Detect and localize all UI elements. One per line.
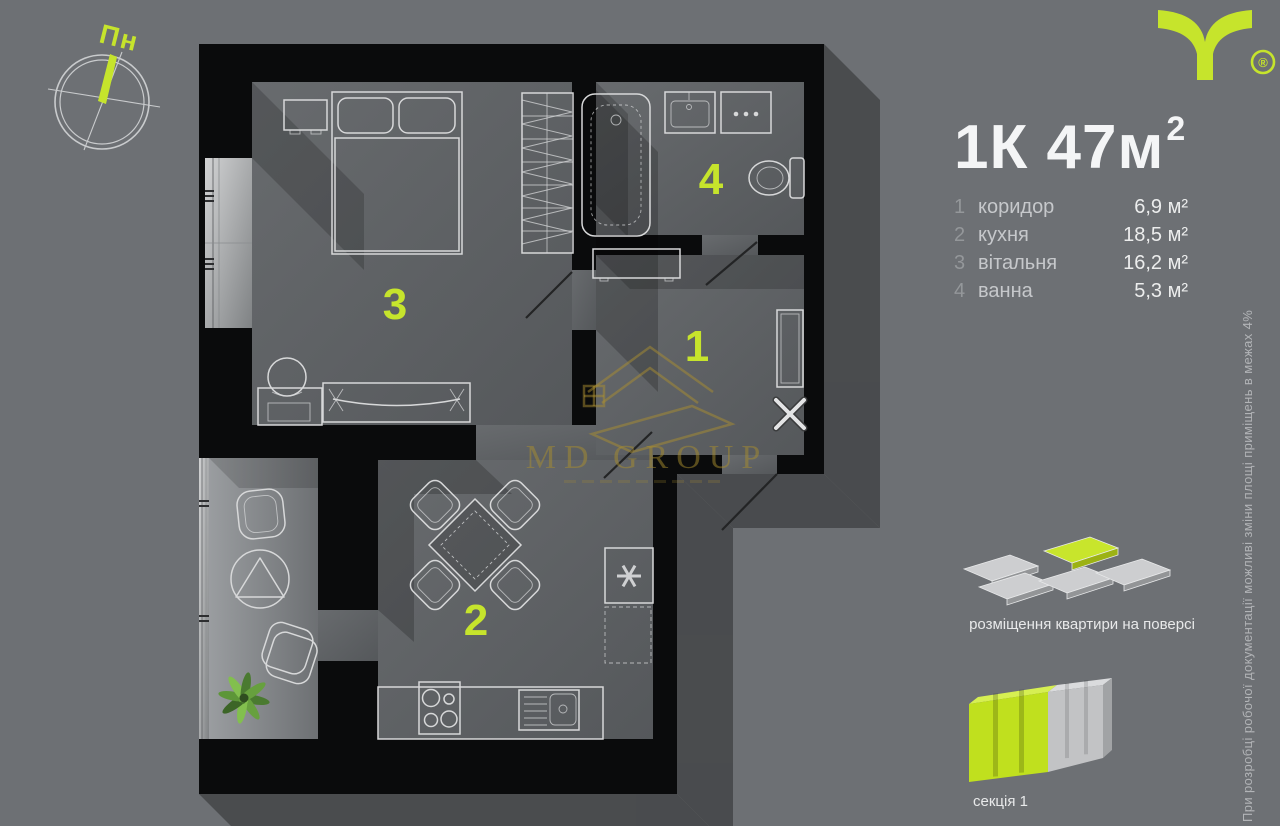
legend-name: кухня	[978, 224, 1123, 247]
rooms-legend: 1коридор6,9 м²2кухня18,5 м²3вітальня16,2…	[954, 196, 1188, 308]
legend-area: 18,5 м²	[1123, 224, 1188, 247]
section-caption: секція 1	[973, 793, 1028, 810]
legend-area: 16,2 м²	[1123, 252, 1188, 275]
floor-position-caption: розміщення квартири на поверсі	[937, 616, 1227, 633]
highlighted-flat-tile	[1044, 537, 1118, 570]
disclaimer-text: При розробці робочої документації можлив…	[1240, 282, 1266, 822]
room-number-corridor: 1	[685, 322, 709, 371]
legend-name: ванна	[978, 280, 1134, 303]
room-number-living-room: 3	[383, 280, 407, 329]
compass: Пн	[36, 2, 176, 164]
legend-row: 4ванна5,3 м²	[954, 280, 1188, 308]
legend-num: 4	[954, 280, 978, 303]
flat-type-area: 1К 47м	[954, 113, 1164, 182]
balcony-passage-floor	[318, 610, 378, 661]
legend-name: вітальня	[978, 252, 1123, 275]
legend-num: 1	[954, 196, 978, 219]
title-superscript: 2	[1166, 110, 1186, 148]
legend-row: 2кухня18,5 м²	[954, 224, 1188, 252]
legend-num: 2	[954, 224, 978, 247]
legend-row: 3вітальня16,2 м²	[954, 252, 1188, 280]
floor-plan: MD GROUP 1 2 3 4	[192, 30, 882, 826]
legend-name: коридор	[978, 196, 1134, 219]
logo-bird-icon	[1158, 10, 1252, 80]
compass-north-needle-icon	[98, 54, 117, 104]
building-section-diagram	[953, 668, 1138, 786]
room-number-bathroom: 4	[699, 155, 724, 204]
flat-plan-page: Пн ® 1К 47м2 1коридор6,9 м²2кухня18,5 м²…	[0, 0, 1280, 826]
section-gray-block	[1048, 678, 1112, 772]
developer-logo-icon: ®	[1152, 4, 1278, 86]
section-highlighted-block	[969, 685, 1057, 782]
compass-north-label: Пн	[97, 19, 143, 58]
floor-position-diagram	[950, 523, 1200, 618]
room-number-kitchen: 2	[464, 596, 488, 645]
bathroom-door-gap	[702, 235, 758, 255]
legend-row: 1коридор6,9 м²	[954, 196, 1188, 224]
page-title: 1К 47м2	[954, 110, 1186, 183]
legend-area: 5,3 м²	[1134, 280, 1188, 303]
living-room-door-gap	[572, 270, 596, 330]
registered-mark: ®	[1258, 55, 1268, 70]
legend-num: 3	[954, 252, 978, 275]
legend-area: 6,9 м²	[1134, 196, 1188, 219]
watermark-text: MD GROUP	[526, 439, 769, 476]
